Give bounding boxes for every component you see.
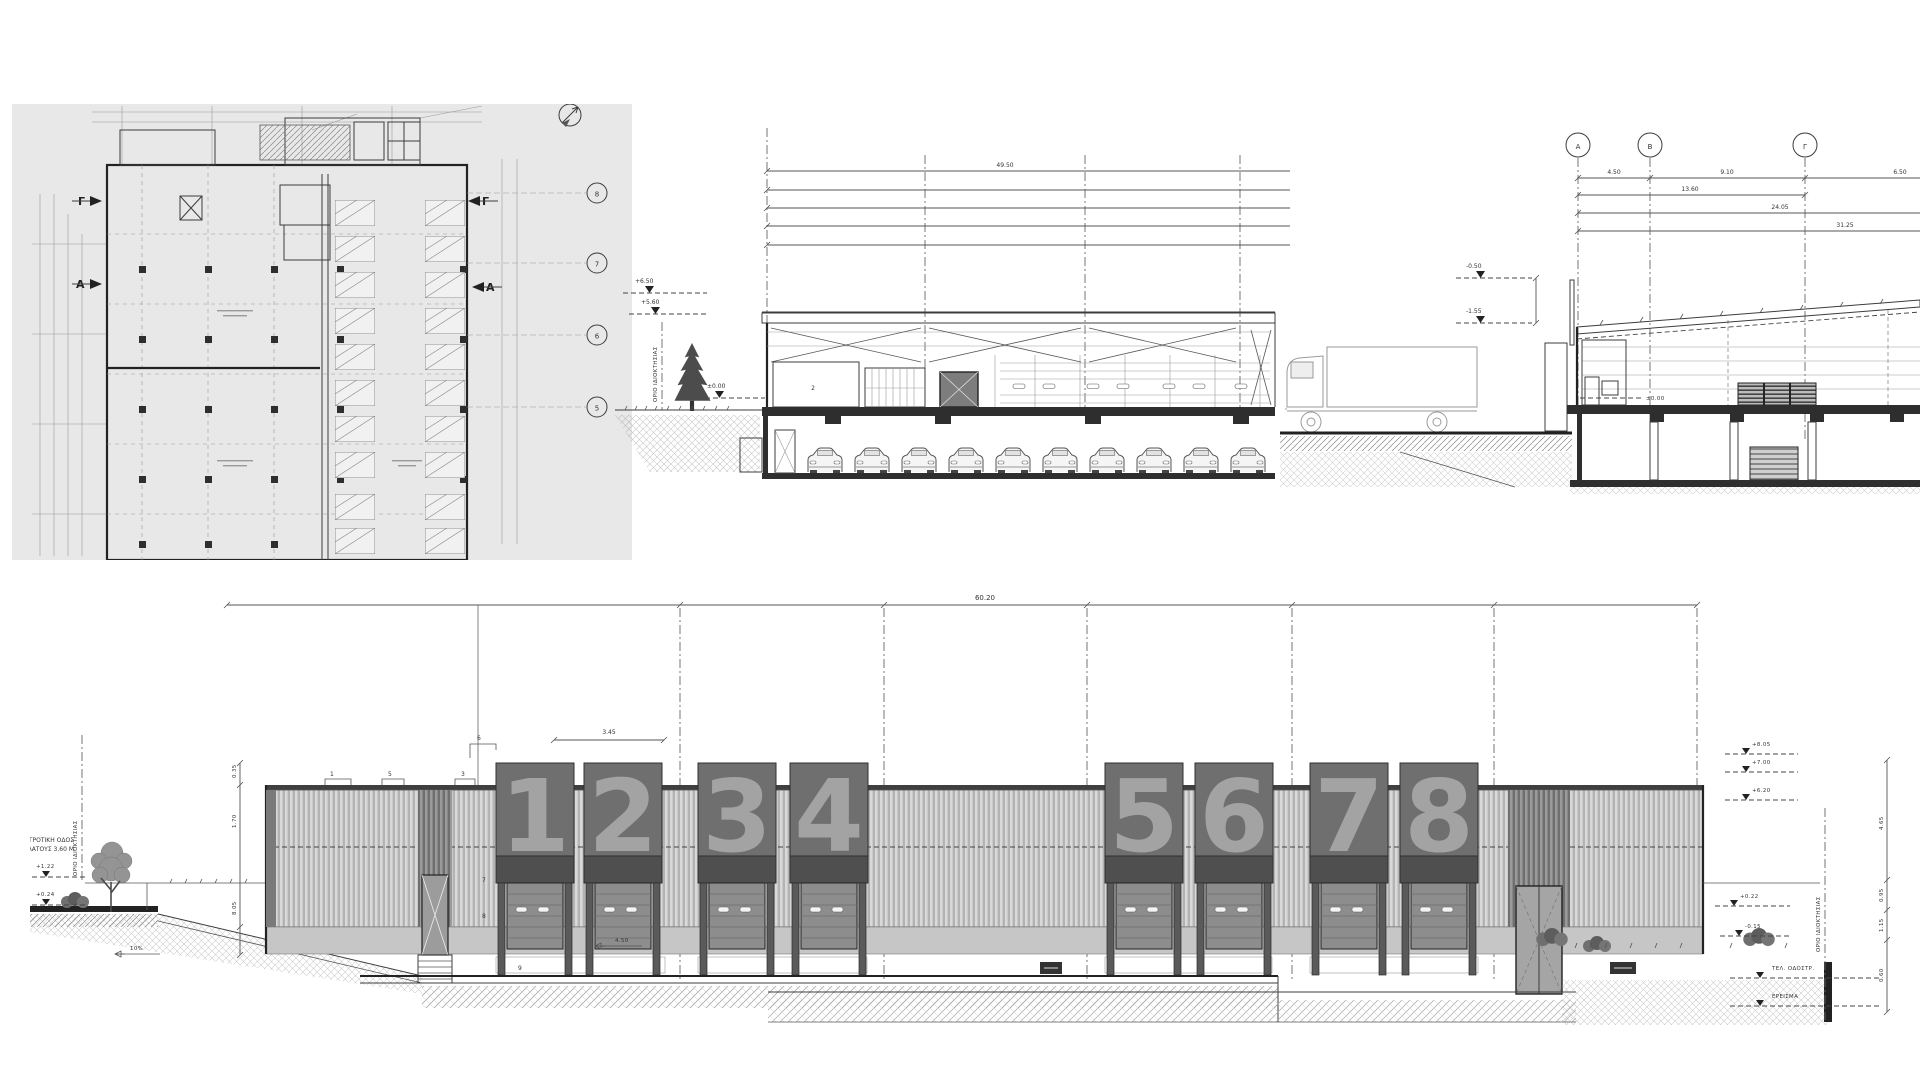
right-note-2: ΕΡΕΙΣΜΑ — [1772, 994, 1798, 1000]
panel-1: 1 — [496, 758, 574, 975]
section-a-ground — [615, 406, 762, 472]
panel-4: 4 — [790, 758, 868, 975]
tree-icon-left — [91, 842, 132, 912]
keynote-1: 1 — [330, 771, 334, 778]
elevation-overall-dimension: 60.20 — [224, 594, 1700, 608]
section-a-drawing: 49.50 +6.50 +5.60 ±0.00 ΟΡΙΟ ΙΔΙΟΚΤΗΣΙΑΣ — [615, 100, 1290, 490]
architectural-drawing-sheet: Γ Γ Α Α 8 7 6 5 — [0, 0, 1920, 1080]
section-b-dimensions — [1575, 175, 1920, 234]
section-b-level-markers: -0.50 -1.55 — [1456, 263, 1539, 326]
section-a-bracing — [771, 328, 1271, 405]
left-door-steps — [418, 955, 452, 983]
elevation-right-levels: +8.05 +7.00 +6.20 +0.22 -0.15 — [1715, 742, 1798, 936]
dim-ab: 4.50 — [1607, 169, 1621, 176]
grid-bubble-5: 5 — [595, 405, 599, 413]
left-dim-1: 0.35 — [232, 764, 238, 778]
section-a-top-dim: 49.50 — [996, 162, 1013, 169]
bubble-A: Α — [1576, 143, 1581, 151]
section-a-basement-door — [775, 430, 795, 473]
left-dim-2: 1.70 — [232, 814, 238, 828]
section-a-room-label: 2 — [811, 385, 815, 392]
keynote-3: 3 — [461, 771, 465, 778]
elevation-left-dims: 0.35 1.70 8.05 — [232, 760, 243, 958]
left-x-door — [422, 875, 448, 955]
grid-bubble-8: 8 — [595, 191, 599, 199]
right-dim-3: 1.15 — [1879, 918, 1885, 932]
bush-icon-left — [61, 892, 89, 908]
right-note-1: ΤΕΛ. ΟΔΟΣΤΡ. — [1771, 966, 1814, 972]
right-level-2: +7.00 — [1752, 760, 1771, 766]
panel-8: 8 — [1400, 758, 1478, 975]
right-dim-4: 0.60 — [1879, 968, 1885, 982]
section-a-x-door — [940, 372, 978, 407]
conifer-tree-icon — [674, 343, 710, 411]
section-a-door-panels — [1000, 363, 1270, 403]
right-dim-2: 0.95 — [1879, 888, 1885, 902]
right-level-1: +8.05 — [1752, 742, 1771, 748]
keynote-8: 8 — [482, 913, 486, 920]
section-a-cars — [808, 448, 1265, 473]
left-level-2: +0.24 — [36, 892, 55, 898]
dim-g-right: 6.50 — [1893, 169, 1907, 176]
dim-450: 4.50 — [615, 938, 629, 944]
road-label-2: ΠΛΑΤΟΥΣ 3.60 Μ — [30, 846, 74, 853]
section-a-boundary: ΟΡΙΟ ΙΔΙΟΚΤΗΣΙΑΣ — [653, 322, 662, 410]
boundary-text-right: ΟΡΙΟ ΙΔΙΟΚΤΗΣΙΑΣ — [1816, 896, 1822, 952]
level-560: +5.60 — [641, 299, 660, 306]
keynote-7: 7 — [482, 877, 486, 884]
bubble-G: Γ — [1803, 143, 1807, 151]
dock-hatch-strips — [496, 957, 1478, 973]
section-a-dimensions — [764, 168, 1290, 248]
keynote-5: 5 — [388, 771, 392, 778]
level-b1: -0.50 — [1466, 263, 1482, 270]
left-level-1: +1.22 — [36, 864, 55, 870]
slope-label: 10% — [130, 946, 143, 952]
section-b-building: ±0.00 — [1545, 280, 1920, 494]
dim-row2: 13.60 — [1681, 186, 1698, 193]
right-level-3: +6.20 — [1752, 788, 1771, 794]
grid-bubble-6: 6 — [595, 333, 600, 341]
section-a-building: 2 — [762, 312, 1275, 479]
section-a-stairs — [865, 368, 925, 407]
panel-3: 3 — [698, 758, 776, 975]
keynote-9: 9 — [518, 965, 522, 972]
bubble-B: Β — [1648, 143, 1653, 151]
left-dim-3: 8.05 — [232, 901, 238, 915]
bush-icon-right-3 — [1743, 928, 1775, 946]
dim-bg: 9.10 — [1720, 169, 1734, 176]
grid-bubble-7: 7 — [595, 261, 599, 269]
dim-345: 3.45 — [602, 729, 616, 736]
panel-6: 6 — [1195, 758, 1273, 975]
right-dim-1: 4.65 — [1879, 816, 1885, 830]
section-b-drawing: Α Β Γ 4.50 9.10 6.50 13.60 24.05 31.25 -… — [1280, 95, 1920, 495]
road-label-1: ΑΓΡΟΤΙΚΗ ΟΔΟΣ — [30, 837, 74, 844]
elevation-boundary-left: ΟΡΙΟ ΙΔΙΟΚΤΗΣΙΑΣ — [73, 735, 82, 880]
floor-plan: Γ Γ Α Α 8 7 6 5 — [12, 104, 640, 560]
section-a-door-handles — [1013, 384, 1247, 389]
level-zero: ±0.00 — [707, 383, 726, 390]
section-a-boundary-text: ΟΡΙΟ ΙΔΙΟΚΤΗΣΙΑΣ — [653, 346, 659, 402]
elevation-right-dims: 4.65 0.95 1.15 0.60 — [1879, 757, 1890, 1015]
panel-5: 5 — [1105, 758, 1183, 975]
dim-row4: 31.25 — [1836, 222, 1853, 229]
right-level-5: -0.15 — [1745, 924, 1761, 930]
overall-dim-label: 60.20 — [975, 594, 995, 602]
elevation-road-label: ΑΓΡΟΤΙΚΗ ΟΔΟΣ ΠΛΑΤΟΥΣ 3.60 Μ — [30, 837, 74, 853]
right-level-4: +0.22 — [1740, 894, 1759, 900]
keynote-6: 6 — [477, 735, 481, 742]
elevation-apron — [360, 962, 1830, 1025]
panel-7: 7 — [1310, 758, 1388, 975]
dim-row3: 24.05 — [1771, 204, 1788, 211]
front-elevation-drawing: 60.20 ΟΡΙΟ ΙΔΙΟΚΤΗΣΙΑΣ ΑΓΡΟΤΙΚΗ ΟΔΟΣ ΠΛΑ… — [30, 580, 1920, 1050]
section-b-grid-bubbles: Α Β Γ — [1566, 133, 1817, 157]
truck-icon — [1285, 347, 1477, 432]
section-b-road — [1280, 433, 1572, 487]
section-b-zero: ±0.00 — [1646, 396, 1665, 402]
level-650: +6.50 — [635, 278, 654, 285]
level-b2: -1.55 — [1466, 308, 1482, 315]
elevation-building — [266, 785, 1703, 994]
